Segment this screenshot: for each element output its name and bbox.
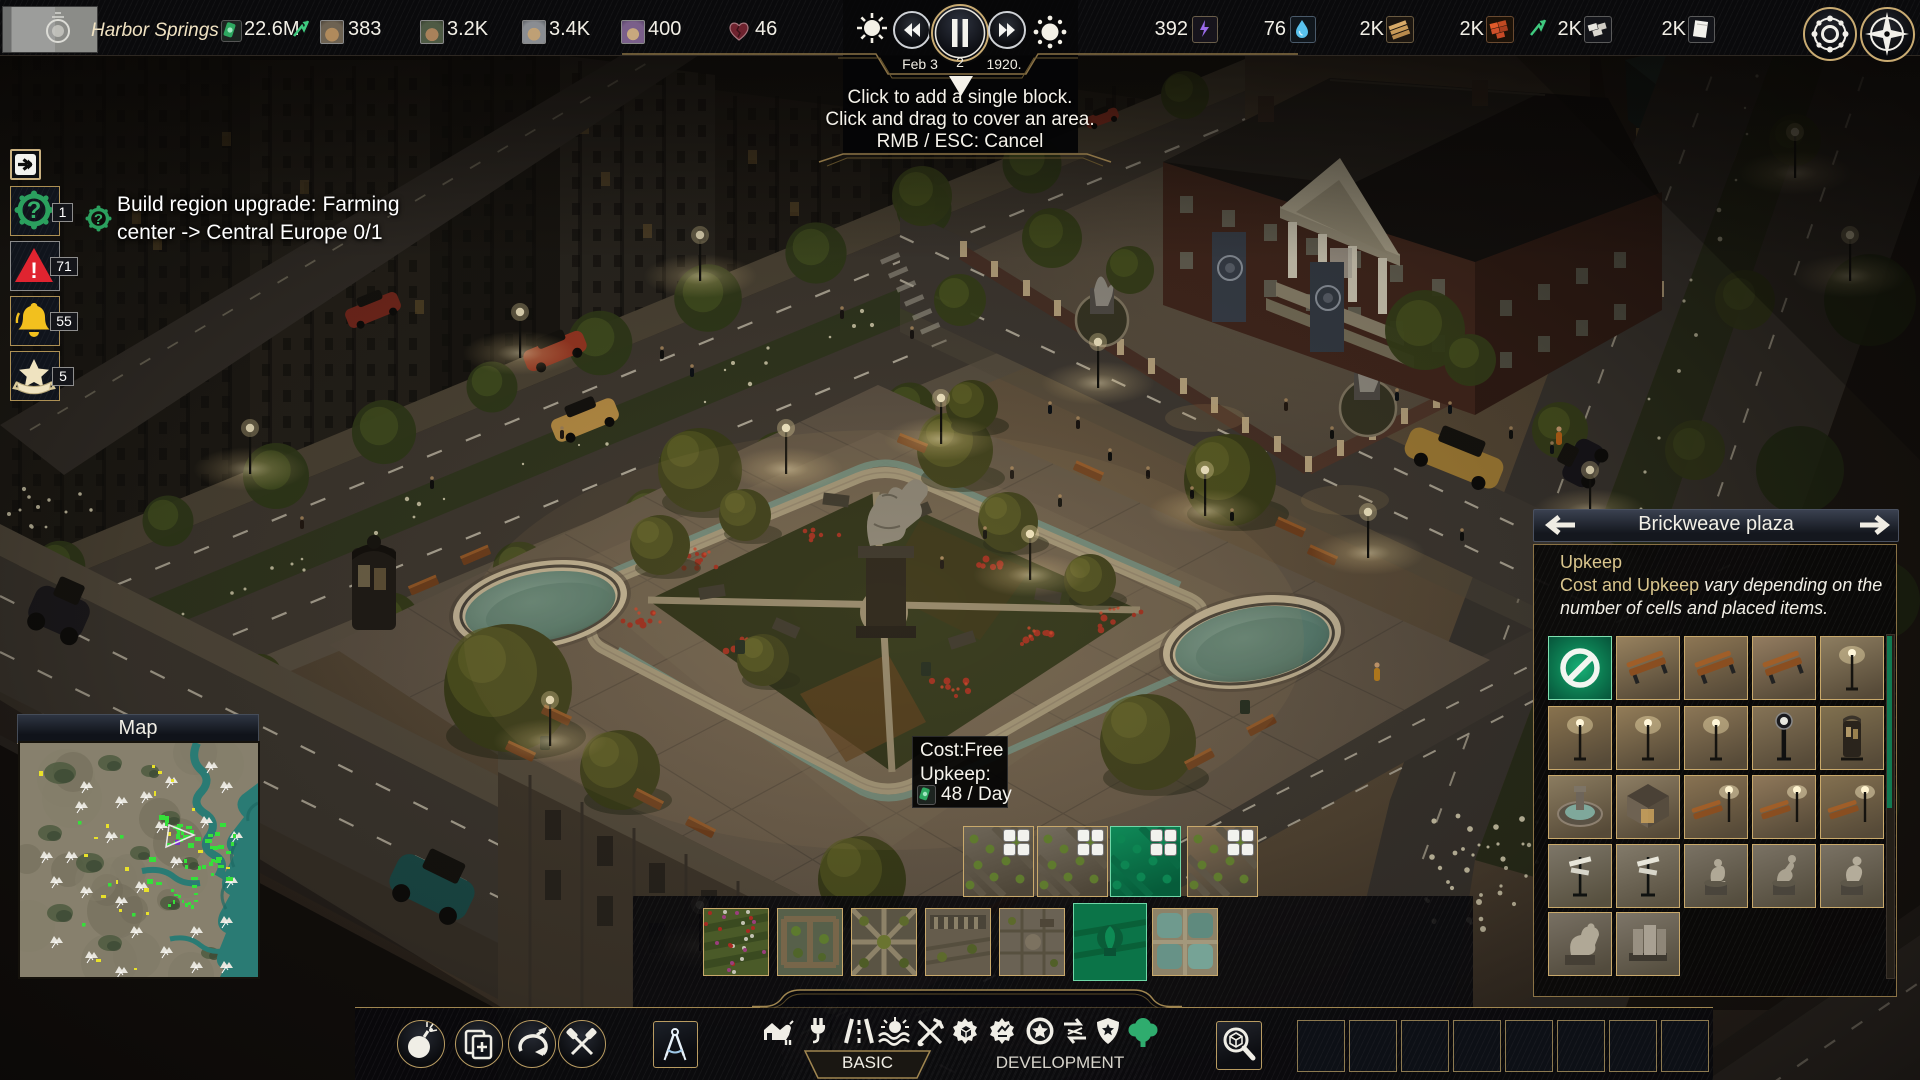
svg-text:!: ! — [30, 258, 37, 283]
svg-text:?: ? — [27, 197, 42, 224]
svg-text:?: ? — [94, 211, 103, 228]
